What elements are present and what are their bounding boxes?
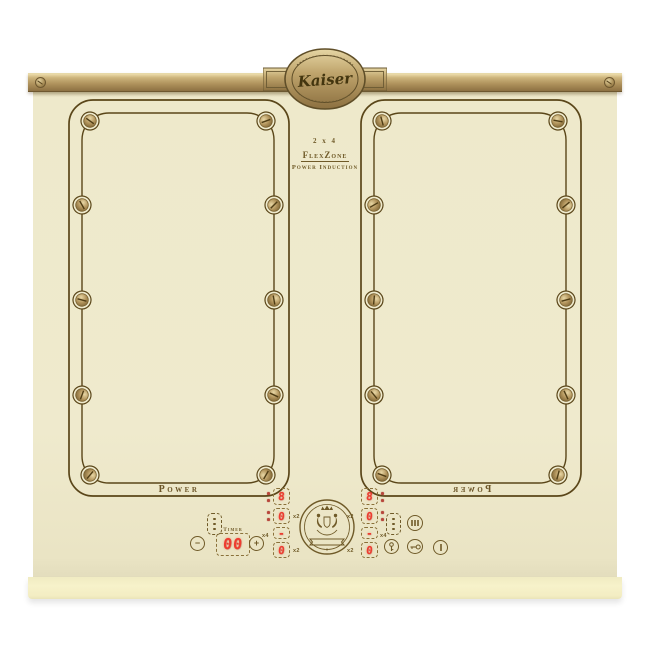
screw-icon — [77, 462, 102, 487]
spec-line2: FlexZone — [301, 150, 350, 162]
spec-line1: 2 x 4 — [275, 137, 375, 145]
right-power-display-2: 0 — [361, 508, 378, 524]
indicator-led — [267, 492, 270, 495]
plus-icon: + — [254, 539, 259, 548]
dot-icon — [213, 528, 215, 530]
multiplier-x4-label: x4 — [380, 533, 387, 539]
screw-icon — [70, 383, 93, 406]
screw-icon — [264, 290, 285, 311]
pause-button[interactable] — [407, 515, 423, 531]
induction-hob: Kaiser Power Power 2 x 4 FlexZone — [0, 0, 650, 650]
lock-button[interactable] — [384, 539, 399, 554]
left-power-display-1: 8 — [273, 488, 290, 505]
dot-icon — [213, 523, 215, 525]
screw-icon — [71, 289, 93, 311]
screw-icon — [370, 463, 393, 486]
indicator-led — [267, 499, 270, 502]
cooking-zone-left — [66, 97, 292, 501]
child-lock-button[interactable] — [407, 539, 423, 554]
indicator-led — [381, 518, 384, 521]
screw-icon — [364, 290, 384, 310]
timer-minus-button[interactable]: − — [190, 536, 205, 551]
screw-icon — [555, 289, 577, 311]
screw-icon — [77, 108, 102, 133]
indicator-led — [381, 511, 384, 514]
multiplier-x4-label: x4 — [262, 533, 269, 539]
screw-icon — [371, 110, 393, 132]
screw-icon — [554, 383, 578, 407]
left-power-display-4: 0 — [273, 542, 290, 558]
screw-icon — [261, 192, 286, 217]
indicator-led — [267, 518, 270, 521]
right-power-display-4: 0 — [361, 542, 378, 558]
indicator-led — [267, 511, 270, 514]
screw-icon — [362, 193, 387, 218]
spec-line3: Power Induction — [275, 164, 375, 171]
right-power-display-3: - — [361, 527, 378, 539]
key-vertical-icon — [387, 542, 396, 552]
right-power-display-1: 8 — [361, 488, 378, 505]
screw-icon — [547, 464, 569, 486]
timer-display: 00 — [216, 533, 250, 556]
screw-icon — [35, 77, 46, 88]
spec-label: 2 x 4 FlexZone Power Induction — [275, 137, 375, 171]
multiplier-x2-label: x2 — [347, 548, 354, 554]
power-icon — [437, 543, 445, 552]
minus-icon: − — [195, 539, 200, 548]
indicator-led — [381, 499, 384, 502]
dot-icon — [392, 528, 394, 530]
left-power-display-2: 0 — [273, 508, 290, 524]
power-on-off-button[interactable] — [433, 540, 448, 555]
multiplier-x2-label: x2 — [347, 514, 354, 520]
front-edge — [28, 577, 622, 599]
left-zone-selector-button[interactable] — [207, 513, 222, 535]
cooking-zone-right — [358, 97, 584, 501]
dot-icon — [392, 518, 394, 520]
screw-icon — [361, 382, 386, 407]
key-horizontal-icon — [410, 543, 421, 551]
indicator-led — [381, 492, 384, 495]
dot-icon — [392, 523, 394, 525]
screw-icon — [604, 77, 615, 88]
screw-icon — [262, 383, 286, 407]
screw-icon — [70, 193, 95, 218]
screw-icon — [254, 109, 277, 132]
left-zone-power-label: Power — [109, 484, 249, 496]
screw-icon — [548, 111, 569, 132]
right-zone-selector-button[interactable] — [386, 513, 401, 535]
screw-icon — [254, 463, 279, 488]
dot-icon — [213, 518, 215, 520]
screw-icon — [553, 192, 578, 217]
left-power-display-3: - — [273, 527, 290, 539]
right-zone-power-label-mirrored: Power — [401, 484, 541, 496]
pause-icon — [410, 518, 420, 528]
